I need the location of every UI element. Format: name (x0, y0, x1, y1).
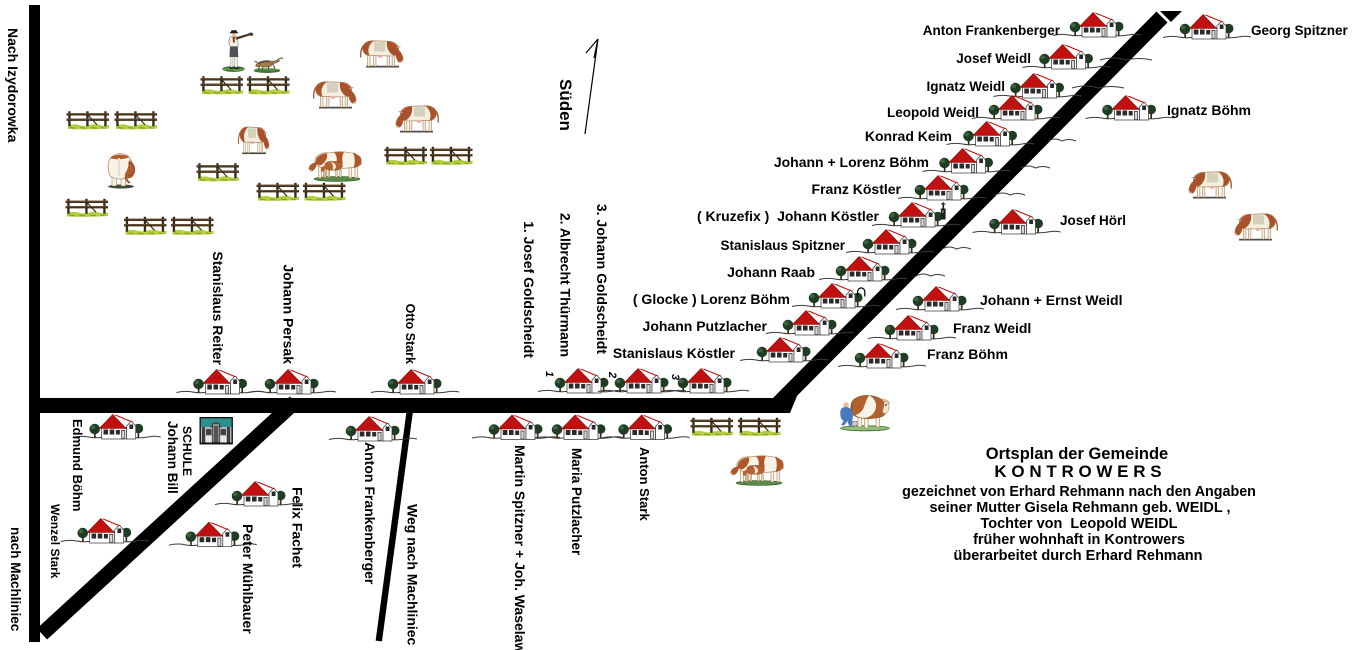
svg-text:Anton Frankenberger: Anton Frankenberger (362, 442, 378, 585)
svg-text:Josef Hörl: Josef Hörl (1060, 213, 1126, 228)
svg-text:Ignatz Weidl: Ignatz Weidl (926, 79, 1005, 94)
svg-text:Johann Raab: Johann Raab (727, 264, 815, 280)
svg-text:K O N T R O W E R S: K O N T R O W E R S (994, 462, 1161, 481)
svg-text:Franz Weidl: Franz Weidl (953, 320, 1031, 336)
svg-text:1. Josef Goldscheidt: 1. Josef Goldscheidt (521, 221, 537, 358)
svg-text:Johann + Ernst Weidl: Johann + Ernst Weidl (980, 292, 1123, 308)
svg-text:Süden: Süden (556, 79, 575, 131)
svg-text:Anton Frankenberger: Anton Frankenberger (923, 23, 1061, 38)
svg-text:( Kruzefix ) Johann Köstler: ( Kruzefix ) Johann Köstler (697, 208, 880, 224)
svg-text:Anton Stark: Anton Stark (637, 447, 652, 521)
svg-text:Otto Stark: Otto Stark (403, 304, 417, 364)
svg-text:Josef Weidl: Josef Weidl (956, 51, 1031, 66)
svg-text:Johann Bill: Johann Bill (165, 421, 180, 494)
svg-text:SCHULE: SCHULE (180, 426, 194, 476)
svg-text:Konrad Keim: Konrad Keim (865, 128, 952, 144)
svg-text:Felix Fachet: Felix Fachet (290, 487, 306, 568)
svg-text:Franz Köstler: Franz Köstler (812, 181, 902, 197)
svg-text:1: 1 (543, 371, 555, 377)
svg-text:Johann + Lorenz Böhm: Johann + Lorenz Böhm (774, 154, 929, 170)
svg-text:gezeichnet von Erhard Rehmann: gezeichnet von Erhard Rehmann nach den A… (902, 484, 1256, 500)
svg-text:Georg Spitzner: Georg Spitzner (1251, 23, 1349, 38)
svg-text:Ortsplan der Gemeinde: Ortsplan der Gemeinde (986, 445, 1168, 463)
svg-text:Peter Mühlbauer: Peter Mühlbauer (240, 524, 256, 634)
svg-text:Leopold Weidl: Leopold Weidl (887, 105, 979, 120)
svg-text:Maria Putzlacher: Maria Putzlacher (569, 448, 584, 556)
svg-text:Nach Izydorowka: Nach Izydorowka (5, 28, 21, 143)
svg-text:Edmund Böhm: Edmund Böhm (70, 419, 85, 511)
svg-text:Wenzel Stark: Wenzel Stark (48, 504, 62, 579)
svg-text:Stanislaus Reiter: Stanislaus Reiter (210, 251, 226, 365)
svg-text:Martin Spitzner + Joh. Waselaw: Martin Spitzner + Joh. Waselaw (512, 445, 528, 650)
svg-text:Weg nach Machliniec: Weg nach Machliniec (405, 504, 421, 646)
svg-text:Tochter von Leopold WEIDL: Tochter von Leopold WEIDL (980, 516, 1177, 532)
svg-text:früher wohnhaft in Kontrowers: früher wohnhaft in Kontrowers (973, 532, 1185, 548)
svg-text:2: 2 (606, 371, 618, 378)
svg-text:Johann Persak: Johann Persak (281, 264, 297, 364)
svg-text:Johann Putzlacher: Johann Putzlacher (643, 318, 768, 334)
svg-text:überarbeitet durch Erhard Rehm: überarbeitet durch Erhard Rehmann (954, 548, 1203, 564)
svg-text:3. Johann Goldscheidt: 3. Johann Goldscheidt (594, 204, 610, 354)
svg-text:nach Machliniec: nach Machliniec (8, 527, 23, 632)
svg-text:Stanislaus Spitzner: Stanislaus Spitzner (720, 238, 845, 253)
svg-text:2. Albrecht Thürmann: 2. Albrecht Thürmann (558, 213, 574, 357)
svg-text:Franz Böhm: Franz Böhm (927, 346, 1008, 362)
svg-text:( Glocke ) Lorenz Böhm: ( Glocke ) Lorenz Böhm (633, 291, 790, 307)
svg-text:seiner Mutter Gisela Rehmann g: seiner Mutter Gisela Rehmann geb. WEIDL … (929, 500, 1230, 516)
svg-text:Ignatz Böhm: Ignatz Böhm (1167, 102, 1251, 118)
svg-text:3: 3 (669, 374, 681, 380)
svg-text:Stanislaus Köstler: Stanislaus Köstler (613, 345, 736, 361)
